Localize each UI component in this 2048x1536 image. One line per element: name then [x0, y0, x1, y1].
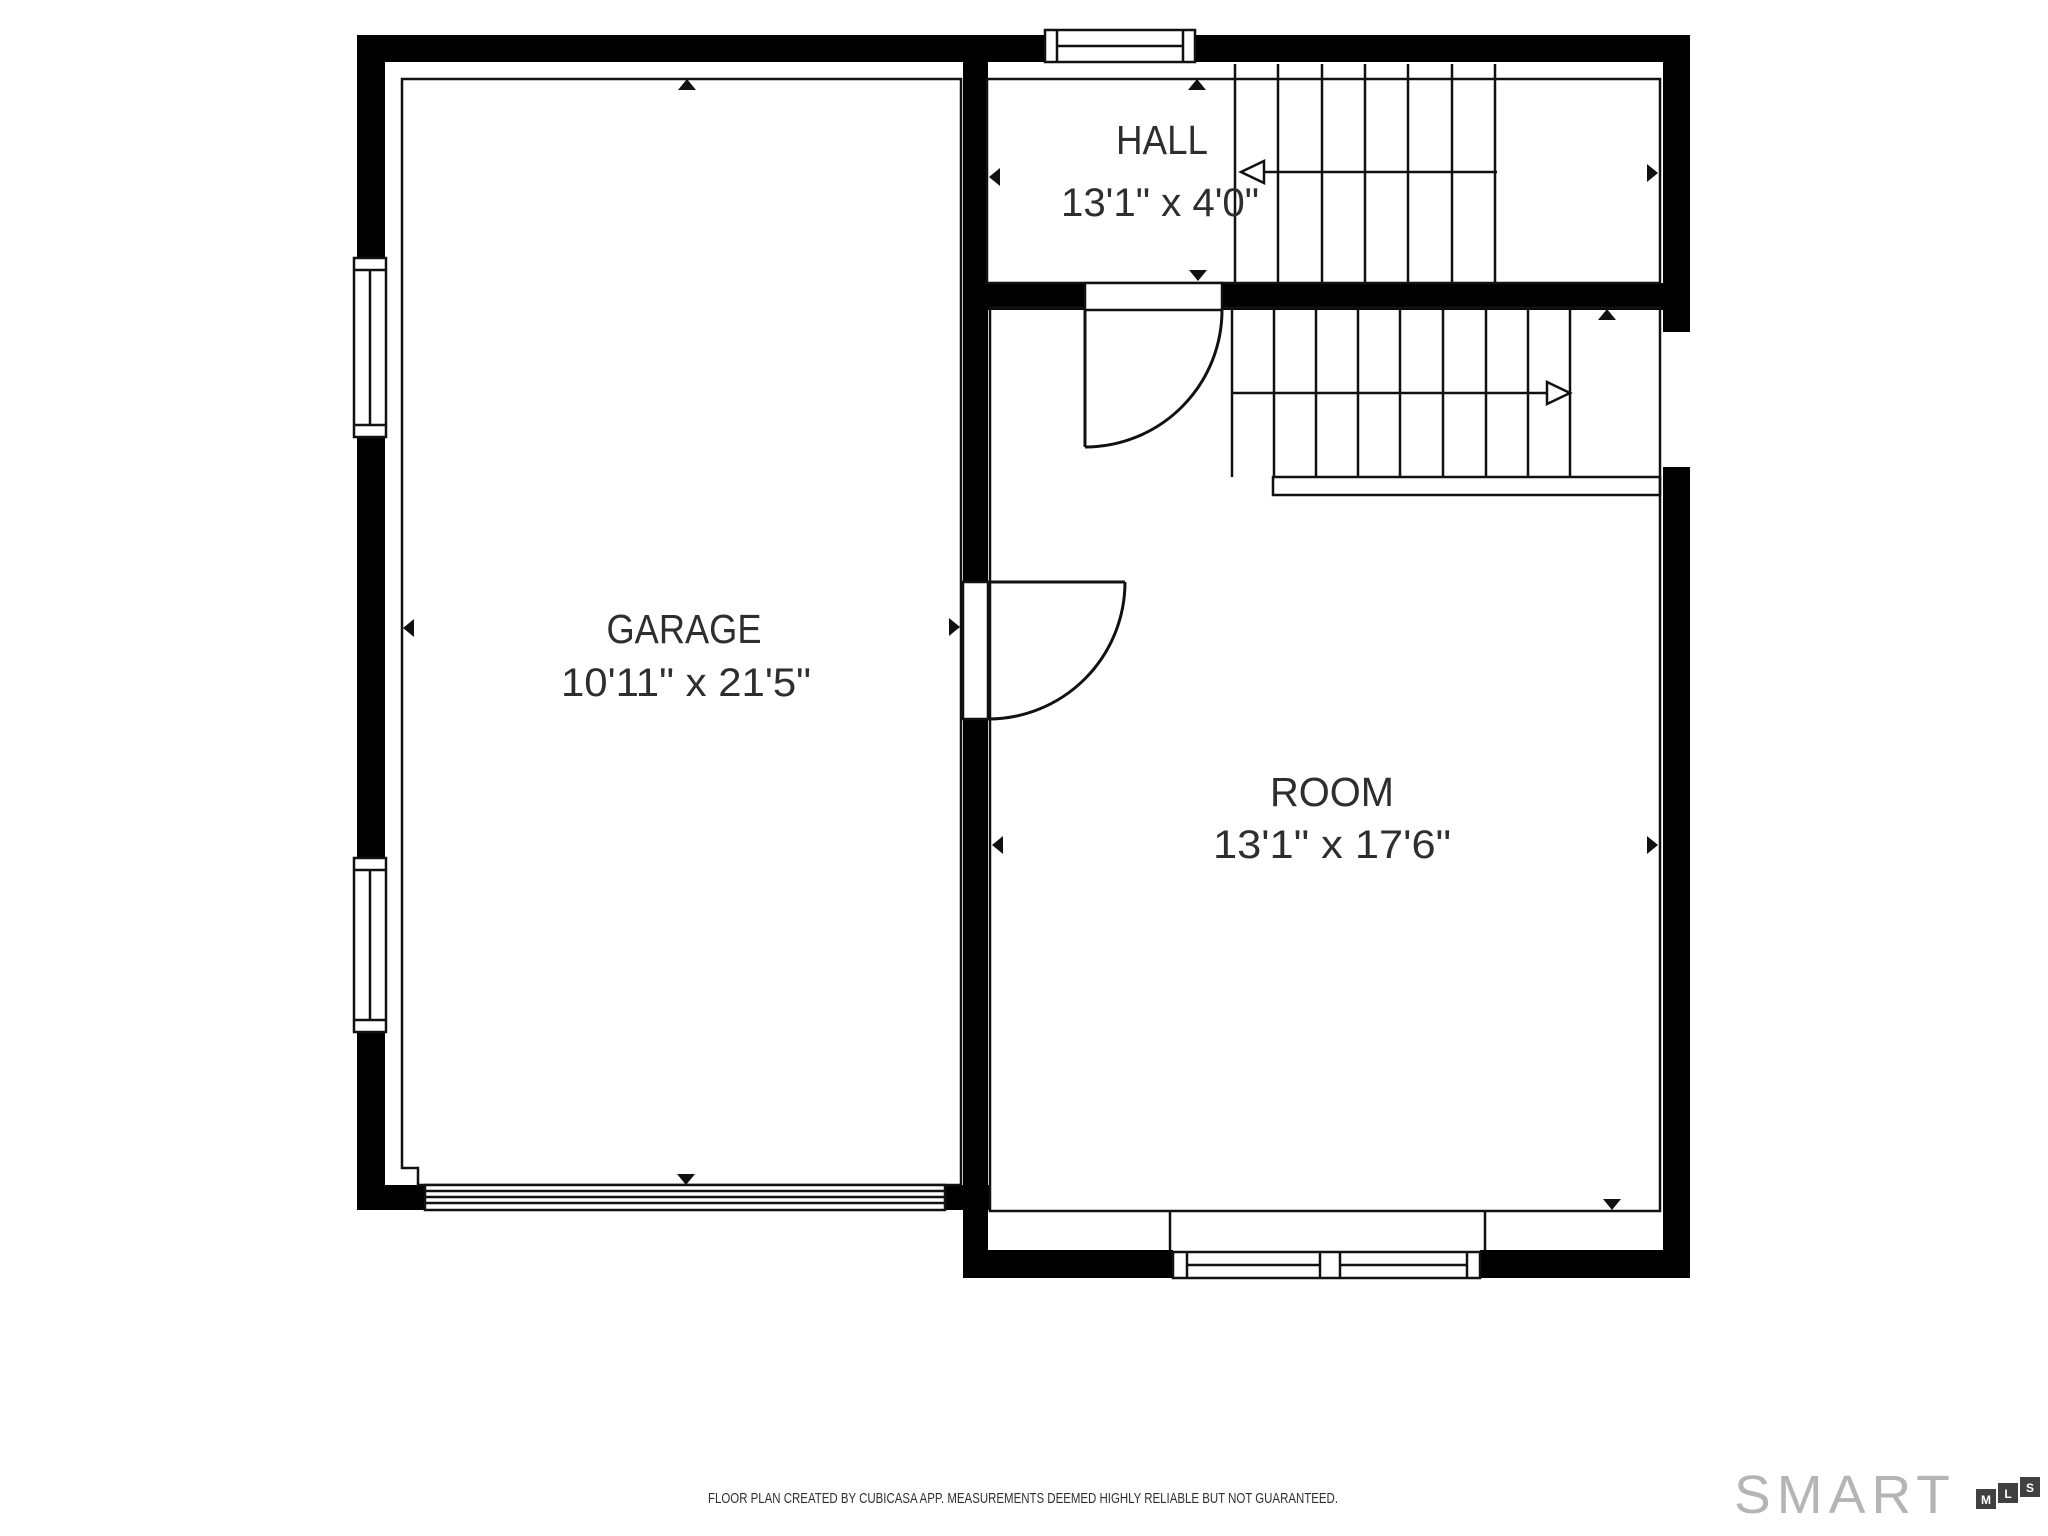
footer-disclaimer: FLOOR PLAN CREATED BY CUBICASA APP. MEAS…	[708, 1490, 1338, 1507]
walls	[357, 35, 1690, 1278]
room-dim-arrow-up	[1598, 309, 1616, 320]
floor-plan-page: GARAGE 10'11" x 21'5" HALL 13'1" x 4'0" …	[0, 0, 2048, 1536]
right-wall-lower-segment	[1663, 467, 1690, 1278]
room-dim-arrow-down	[1603, 1199, 1621, 1210]
right-wall-upper-segment	[1663, 35, 1690, 332]
garage-door	[425, 1185, 945, 1210]
staircase-lower-flight	[1232, 310, 1660, 495]
garage-label: GARAGE	[607, 606, 762, 652]
left-window-lower	[354, 858, 386, 1032]
room-label: ROOM	[1270, 769, 1394, 815]
garage-dim-arrow-down	[677, 1174, 695, 1185]
logo-box-m-letter: M	[1981, 1493, 1991, 1507]
top-wall-right-segment	[1195, 35, 1690, 62]
garage-room-door-opening	[963, 582, 988, 719]
room-dim-arrow-right	[1647, 836, 1658, 854]
hall-dim-arrow-left	[989, 168, 1000, 186]
bottom-wall-right-segment	[1480, 1250, 1690, 1278]
room-labels: GARAGE 10'11" x 21'5" HALL 13'1" x 4'0" …	[561, 117, 1451, 867]
floor-plan-canvas: GARAGE 10'11" x 21'5" HALL 13'1" x 4'0" …	[0, 0, 2048, 1536]
bottom-wall-left-segment	[963, 1250, 1173, 1278]
dimension-arrows	[403, 79, 1658, 1210]
room-dimensions: 13'1" x 17'6"	[1213, 823, 1451, 867]
room-outline	[990, 308, 1660, 1211]
top-window	[1045, 30, 1195, 62]
bottom-double-window	[1173, 1252, 1480, 1278]
logo-box-s-letter: S	[2026, 1481, 2034, 1495]
left-wall-middle-segment	[357, 437, 385, 858]
hall-dim-arrow-up	[1188, 79, 1206, 90]
hall-bottom-wall-right-segment	[1222, 283, 1663, 310]
left-window-upper	[354, 258, 386, 437]
garage-dimensions: 10'11" x 21'5"	[561, 661, 811, 705]
garage-dim-arrow-left	[403, 619, 414, 637]
doors	[963, 283, 1222, 719]
stair-direction-arrow-right	[1547, 382, 1570, 404]
hall-dim-arrow-right	[1647, 164, 1658, 182]
room-dim-arrow-left	[992, 836, 1003, 854]
logo-box-l-letter: L	[2004, 1487, 2011, 1501]
hall-dim-arrow-down	[1189, 270, 1207, 281]
stair-landing-strip	[1273, 477, 1660, 495]
windows	[354, 30, 1480, 1278]
hall-room-door-swing-arc	[1085, 310, 1222, 447]
left-wall-upper-segment	[357, 35, 385, 258]
garage-dim-arrow-right	[949, 618, 960, 636]
smart-mls-logo: SMART M L S	[1734, 1465, 2040, 1525]
interior-wall-upper-segment	[963, 62, 988, 582]
hall-bottom-wall-left-segment	[988, 283, 1085, 310]
left-wall-lower-segment	[357, 1032, 385, 1210]
top-wall-left-segment	[357, 35, 1045, 62]
stair-direction-arrow-left	[1241, 161, 1264, 183]
garage-bottom-left-stub	[357, 1185, 425, 1210]
hall-room-door-opening	[1085, 283, 1222, 310]
logo-brand-text: SMART	[1734, 1465, 1956, 1525]
hall-dimensions: 13'1" x 4'0"	[1061, 181, 1259, 225]
staircase-upper-flight	[1235, 64, 1497, 283]
garage-room-door-swing-arc	[988, 582, 1125, 719]
hall-label: HALL	[1116, 117, 1208, 163]
garage-dim-arrow-up	[678, 79, 696, 90]
interior-wall-lower-segment	[963, 719, 988, 1277]
